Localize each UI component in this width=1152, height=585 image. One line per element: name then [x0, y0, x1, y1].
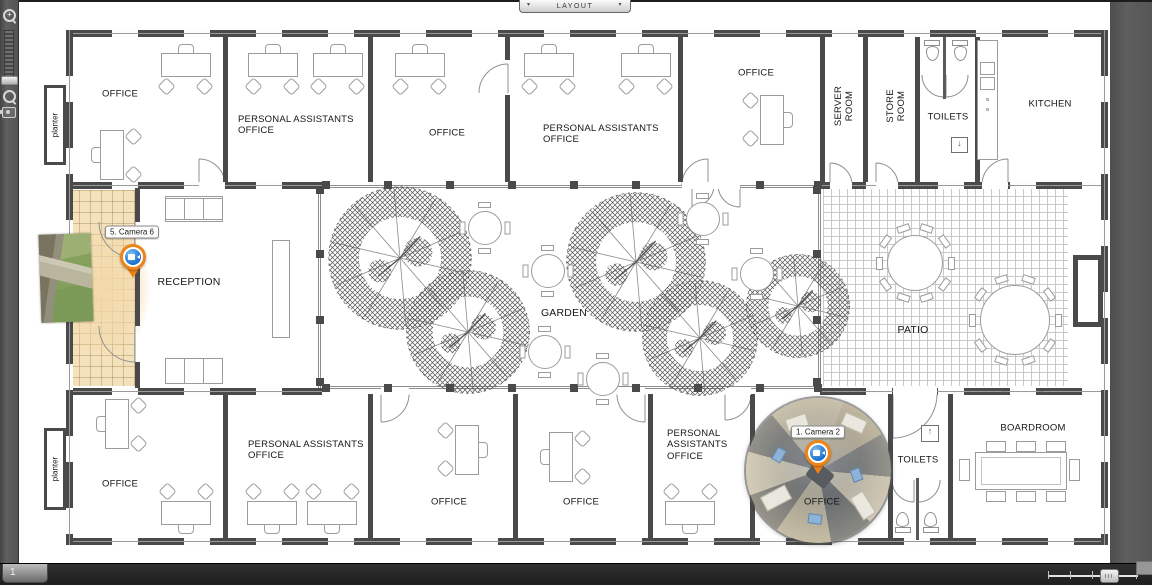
guest-chair: [655, 77, 673, 95]
guest-chair: [347, 77, 365, 95]
floorplan-canvas[interactable]: ↓ ↑ ← → ← → planter planter OFFICE PERSO…: [0, 0, 1152, 563]
garden-table: [528, 335, 562, 369]
column: [756, 384, 764, 392]
sliding-door-arrow: ←: [1007, 180, 1016, 189]
desk-set: [616, 44, 676, 96]
garden-wall: [818, 186, 821, 388]
desk-set: [308, 44, 368, 96]
kitchen-hob-dot: [986, 98, 989, 101]
wall: [223, 394, 228, 538]
camera-floorplan-app: ↓ ↑ ← → ← → planter planter OFFICE PERSO…: [0, 0, 1152, 585]
camera-marker-6[interactable]: [120, 244, 146, 285]
guest-chair: [617, 77, 635, 95]
desk-set: [519, 44, 579, 96]
guest-chair: [195, 77, 213, 95]
garden-chair: [520, 346, 526, 359]
wall: [505, 95, 510, 182]
window-wall: [66, 30, 1108, 37]
garden-chair: [777, 268, 783, 281]
room-label-office-top-2: OFFICE: [429, 128, 465, 139]
desk-set: [96, 394, 148, 454]
wall: [648, 394, 653, 538]
zoom-slider-handle[interactable]: [1, 76, 18, 85]
zoom-out-icon[interactable]: [3, 90, 16, 103]
patio-table: [980, 285, 1050, 355]
site-photo-thumbnail[interactable]: [38, 233, 93, 323]
zoom-slider-track[interactable]: [4, 30, 14, 82]
boardroom-chair: [986, 491, 1006, 502]
desk: [621, 53, 671, 77]
bottom-slider-track[interactable]: [1048, 575, 1138, 577]
boardroom-chair: [986, 441, 1006, 452]
desk: [161, 501, 211, 525]
garden-chair: [565, 346, 571, 359]
stall-wall: [916, 478, 919, 540]
desk: [313, 53, 363, 77]
guest-chair: [558, 77, 576, 95]
page-tab-1[interactable]: 1: [2, 564, 48, 583]
layout-dropdown[interactable]: ▾ LAYOUT ▾: [519, 0, 631, 13]
column: [813, 378, 821, 386]
wall: [135, 188, 140, 222]
garden-table: [468, 211, 502, 245]
column: [446, 181, 454, 189]
patio-chair: [876, 257, 883, 270]
desk-set: [156, 482, 216, 534]
guest-chair: [741, 129, 759, 147]
reception-desk: [272, 240, 290, 338]
camera-pin-head: [805, 440, 831, 466]
boardroom-chair: [1046, 441, 1066, 452]
kitchen-sink: [980, 77, 995, 90]
guest-chair: [124, 165, 142, 183]
stall-wall: [943, 37, 946, 99]
desk-set: [436, 420, 488, 480]
guest-chair: [244, 77, 262, 95]
guest-chair: [342, 482, 360, 500]
desk-set: [741, 90, 793, 150]
column: [813, 250, 821, 258]
room-label-server-room: SERVER ROOM: [834, 78, 856, 134]
desk-set: [540, 427, 592, 487]
column: [316, 316, 324, 324]
desk-set: [390, 44, 450, 96]
garden-chair: [696, 239, 709, 245]
guest-chair: [129, 434, 147, 452]
column: [694, 384, 702, 392]
toilet-direction-box: ↑: [921, 425, 939, 442]
room-label-kitchen: KITCHEN: [1028, 99, 1071, 110]
column: [813, 186, 821, 194]
video-camera-icon: [125, 249, 141, 265]
door-opening: [199, 182, 225, 189]
garden-table: [586, 362, 620, 396]
zoom-toolbar: +: [0, 0, 19, 563]
room-label-toilets-bottom: TOILETS: [898, 455, 939, 466]
toilet-direction-box: ↓: [951, 137, 968, 153]
garden-chair: [596, 353, 609, 359]
room-label-toilets-top: TOILETS: [928, 112, 969, 123]
guest-chair: [436, 421, 454, 439]
patio-chair: [948, 257, 955, 270]
guest-chair: [662, 482, 680, 500]
guest-chair: [436, 459, 454, 477]
camera-label-6[interactable]: 5. Camera 6: [105, 226, 159, 239]
slider-tick: [1092, 571, 1093, 579]
office-chair: [682, 524, 698, 534]
guest-chair: [391, 77, 409, 95]
garden-chair: [460, 222, 466, 235]
wall: [368, 37, 373, 182]
reception-sofa: [165, 198, 223, 220]
desk: [105, 399, 129, 449]
boardroom-chair: [1046, 491, 1066, 502]
guest-chair: [309, 77, 327, 95]
right-panel-strip: [1110, 0, 1152, 563]
patio-chair: [1055, 314, 1062, 327]
boardroom-chair: [959, 459, 970, 481]
desk: [248, 53, 298, 77]
toilet-fixture: [924, 40, 940, 61]
fisheye-desk: [760, 484, 792, 511]
office-chair: [324, 524, 340, 534]
fisheye-desk: [850, 491, 876, 521]
patio-chair: [969, 314, 976, 327]
garden-chair: [538, 326, 551, 332]
garden-chair: [578, 373, 584, 386]
garden-chair: [723, 213, 729, 226]
desk: [161, 53, 211, 77]
column: [632, 181, 640, 189]
room-label-reception: RECEPTION: [157, 276, 220, 288]
column: [813, 316, 821, 324]
garden-table: [686, 202, 720, 236]
desk: [395, 53, 445, 77]
reception-sofa: [165, 358, 223, 384]
wall: [948, 394, 953, 538]
room-label-office-bottom-3: OFFICE: [563, 497, 599, 508]
sliding-door-arrow: ←: [1000, 386, 1009, 395]
room-label-pa-office-bottom-2: PERSONAL ASSISTANTS OFFICE: [667, 428, 739, 462]
guest-chair: [244, 482, 262, 500]
boardroom-chair: [1016, 491, 1036, 502]
bottom-bar: 1: [0, 563, 1152, 585]
guest-chair: [124, 127, 142, 145]
desk: [100, 130, 124, 180]
boardroom-table-inner: [981, 457, 1061, 485]
layout-dropdown-label: LAYOUT: [557, 3, 594, 10]
column: [316, 186, 324, 194]
guest-chair: [700, 482, 718, 500]
wall: [915, 37, 920, 182]
column: [384, 384, 392, 392]
room-label-store-room: STORE ROOM: [886, 78, 908, 134]
guest-chair: [573, 467, 591, 485]
door-opening: [982, 182, 1008, 189]
dropdown-arrow-icon: ▾: [618, 2, 623, 8]
column: [316, 378, 324, 386]
guest-chair: [282, 77, 300, 95]
fisheye-screen: [771, 446, 787, 463]
desk-set: [660, 482, 720, 534]
desk: [247, 501, 297, 525]
door-opening: [893, 388, 937, 395]
guest-chair: [741, 91, 759, 109]
door-opening: [830, 182, 852, 189]
sliding-door-arrow: →: [1043, 180, 1052, 189]
desk: [524, 53, 574, 77]
column: [570, 181, 578, 189]
room-label-pa-office-top-2: PERSONAL ASSISTANTS OFFICE: [543, 123, 677, 146]
garden-chair: [732, 268, 738, 281]
wall: [513, 394, 518, 538]
wall: [505, 37, 510, 60]
wall: [223, 37, 228, 182]
wall: [820, 37, 825, 182]
column: [384, 181, 392, 189]
garden-table: [531, 254, 565, 288]
garden-chair: [478, 248, 491, 254]
room-label-boardroom: BOARDROOM: [1000, 423, 1065, 434]
wall: [368, 394, 373, 538]
garden-chair: [750, 294, 763, 300]
desk-set: [302, 482, 362, 534]
desk: [549, 432, 573, 482]
bottom-zoom-slider: [1048, 564, 1140, 585]
boardroom-chair: [1069, 459, 1080, 481]
room-label-office-bottom-4: OFFICE: [804, 497, 840, 508]
boardroom-chair: [1016, 441, 1036, 452]
fisheye-screen: [850, 467, 864, 483]
desk-set: [91, 125, 143, 185]
desk-set: [242, 482, 302, 534]
garden-chair: [523, 265, 529, 278]
guest-chair: [304, 482, 322, 500]
camera-pin-head: [120, 244, 146, 270]
column: [756, 181, 764, 189]
office-chair: [783, 112, 793, 128]
guest-chair: [520, 77, 538, 95]
garden-chair: [478, 202, 491, 208]
camera-label-2[interactable]: 1. Camera 2: [791, 426, 845, 439]
room-label-pa-office-top-1: PERSONAL ASSISTANTS OFFICE: [238, 114, 372, 137]
desk: [307, 501, 357, 525]
camera-marker-2[interactable]: [805, 440, 831, 481]
window-wall: [66, 538, 1108, 545]
garden-chair: [541, 291, 554, 297]
desk-set: [243, 44, 303, 96]
slider-tick: [1070, 571, 1071, 579]
sliding-door-arrow: →: [1036, 386, 1045, 395]
room-label-office-top-3: OFFICE: [738, 68, 774, 79]
room-label-office-bottom-2: OFFICE: [431, 497, 467, 508]
door-opening: [725, 388, 751, 395]
garden-chair: [568, 265, 574, 278]
column: [446, 384, 454, 392]
kitchen-hob-dot: [986, 108, 989, 111]
kitchen-sink: [980, 62, 995, 75]
garden-chair: [750, 248, 763, 254]
garden-chair: [596, 399, 609, 405]
toilet-fixture: [952, 40, 968, 61]
room-label-patio: PATIO: [898, 324, 929, 336]
fisheye-screen: [807, 513, 822, 525]
guest-chair: [157, 77, 175, 95]
resize-corner[interactable]: [1136, 561, 1152, 575]
garden-chair: [623, 373, 629, 386]
guest-chair: [573, 429, 591, 447]
garden-table: [740, 257, 774, 291]
guest-chair: [282, 482, 300, 500]
slider-tick: [1048, 571, 1049, 579]
garden-chair: [505, 222, 511, 235]
room-label-garden: GARDEN: [541, 307, 587, 319]
guest-chair: [196, 482, 214, 500]
guest-chair: [158, 482, 176, 500]
room-label-pa-office-bottom-1: PERSONAL ASSISTANTS OFFICE: [248, 439, 374, 462]
toilet-fixture: [923, 512, 939, 533]
room-label-planter-top: planter: [51, 113, 60, 137]
office-chair: [264, 524, 280, 534]
garden-chair: [541, 245, 554, 251]
desk: [665, 501, 715, 525]
room-label-office-top-1: OFFICE: [102, 89, 138, 100]
patio-table: [887, 235, 943, 291]
desk: [760, 95, 784, 145]
camera-view-icon[interactable]: [2, 107, 16, 118]
office-chair: [478, 442, 488, 458]
dropdown-arrow-icon: ▾: [527, 2, 532, 8]
garden-chair: [696, 193, 709, 199]
guest-chair: [429, 77, 447, 95]
door-opening: [876, 182, 898, 189]
desk-set: [156, 44, 216, 96]
garden-chair: [678, 213, 684, 226]
toilet-fixture: [895, 512, 911, 533]
patio-east-window: [1073, 255, 1103, 327]
column: [508, 384, 516, 392]
column: [316, 250, 324, 258]
wall: [135, 362, 140, 388]
door-opening: [617, 388, 645, 395]
office-chair: [178, 524, 194, 534]
video-camera-icon: [810, 445, 826, 461]
garden-chair: [538, 372, 551, 378]
wall: [678, 37, 683, 182]
column: [632, 384, 640, 392]
room-label-planter-bottom: planter: [51, 457, 60, 481]
guest-chair: [129, 396, 147, 414]
column: [508, 181, 516, 189]
bottom-slider-handle[interactable]: [1100, 569, 1119, 583]
garden-wall: [318, 186, 321, 388]
desk: [455, 425, 479, 475]
window-wall: [820, 182, 1108, 189]
door-opening: [692, 182, 740, 189]
room-label-office-bottom-1: OFFICE: [102, 479, 138, 490]
window-wall: [820, 388, 1108, 395]
zoom-in-icon[interactable]: +: [3, 9, 16, 22]
wall: [863, 37, 868, 182]
